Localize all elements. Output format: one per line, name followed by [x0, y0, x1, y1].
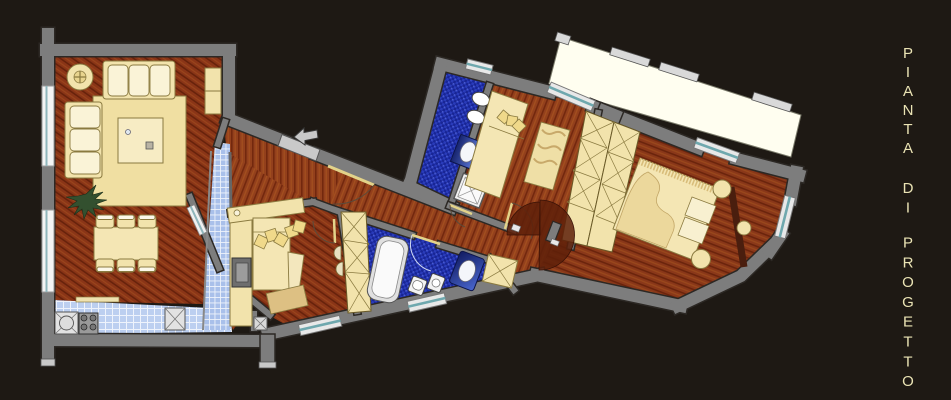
- svg-text:E: E: [903, 314, 913, 331]
- svg-text:T: T: [903, 121, 912, 138]
- svg-text:T: T: [903, 334, 912, 351]
- svg-text:G: G: [902, 294, 914, 311]
- svg-text:A: A: [903, 83, 913, 100]
- svg-text:A: A: [903, 140, 913, 157]
- svg-text:R: R: [903, 254, 914, 271]
- svg-text:I: I: [906, 64, 910, 81]
- svg-text:I: I: [906, 200, 910, 217]
- svg-text:P: P: [903, 235, 913, 252]
- svg-text:P: P: [903, 45, 913, 62]
- svg-text:O: O: [902, 274, 914, 291]
- svg-text:N: N: [903, 102, 914, 119]
- svg-text:D: D: [903, 180, 914, 197]
- svg-text:T: T: [903, 353, 912, 370]
- svg-text:O: O: [902, 373, 914, 390]
